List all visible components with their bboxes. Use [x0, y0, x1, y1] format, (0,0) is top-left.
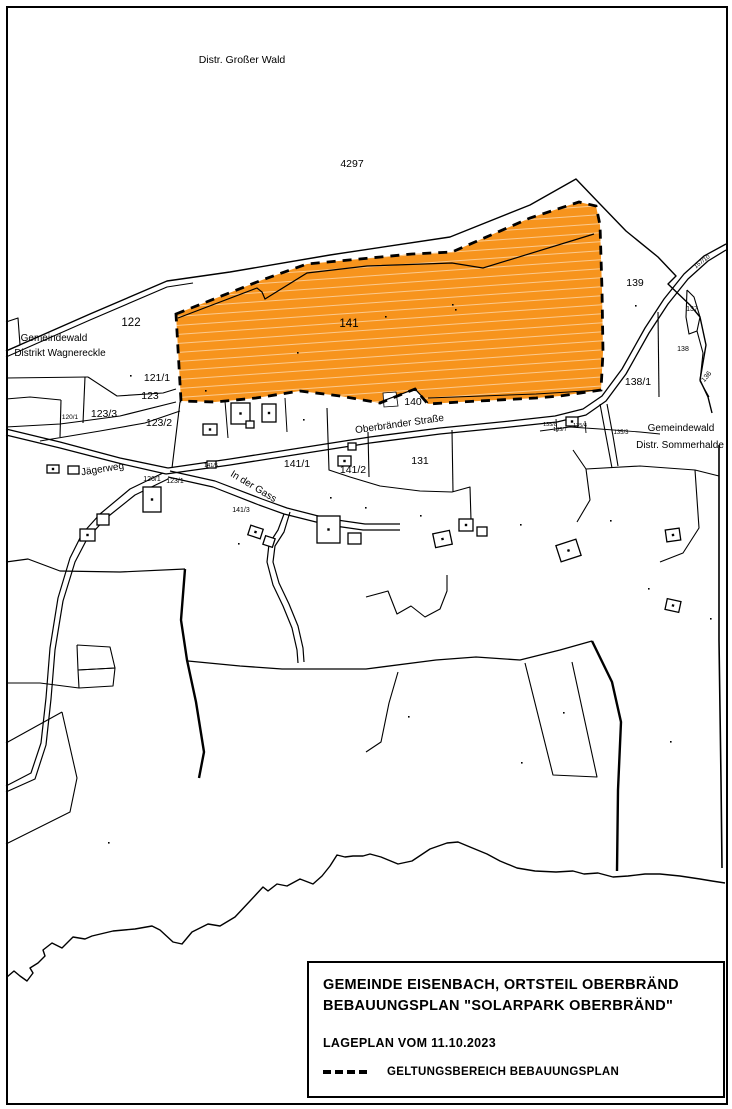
map-frame-border [6, 6, 728, 1105]
lageplan-page: Distr. Großer Wald4297122GemeindewaldDis… [0, 0, 732, 1109]
title-block: GEMEINDE EISENBACH, ORTSTEIL OBERBRÄND B… [307, 961, 725, 1098]
plan-date-line: LAGEPLAN VOM 11.10.2023 [323, 1036, 723, 1050]
geltungsbereich-dash-symbol [323, 1070, 371, 1074]
plan-title-name: BEBAUUNGSPLAN "SOLARPARK OBERBRÄND" [323, 996, 723, 1017]
plan-title-municipality: GEMEINDE EISENBACH, ORTSTEIL OBERBRÄND [323, 975, 723, 996]
legend-label: GELTUNGSBEREICH BEBAUUNGSPLAN [387, 1066, 619, 1078]
legend-row: GELTUNGSBEREICH BEBAUUNGSPLAN [323, 1066, 723, 1078]
